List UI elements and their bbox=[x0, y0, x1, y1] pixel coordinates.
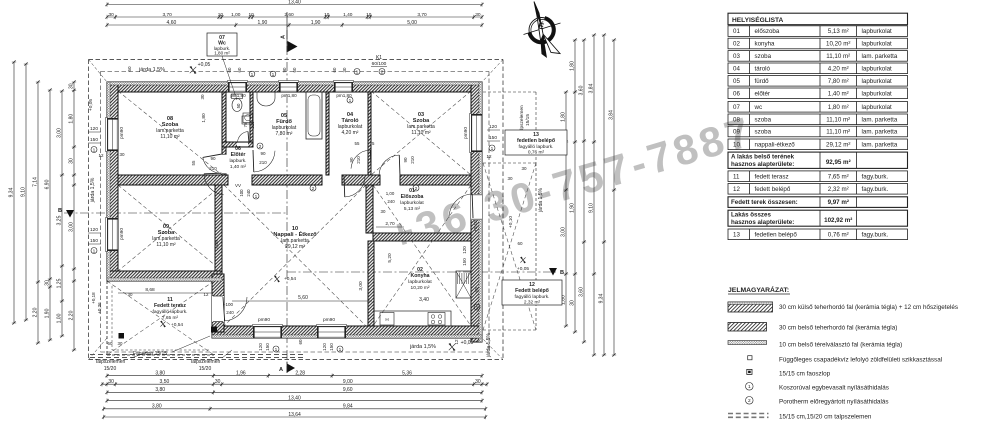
svg-text:fagy.burk.: fagy.burk. bbox=[862, 186, 889, 193]
svg-text:1: 1 bbox=[748, 384, 751, 390]
svg-text:hasznos alapterülete:: hasznos alapterülete: bbox=[731, 219, 794, 226]
svg-text:1: 1 bbox=[339, 347, 342, 353]
svg-text:90: 90 bbox=[349, 157, 354, 163]
svg-text:Függőleges csapadékvíz lefolyó: Függőleges csapadékvíz lefolyó zöldfelül… bbox=[779, 357, 942, 364]
svg-text:12: 12 bbox=[733, 186, 740, 193]
svg-text:1: 1 bbox=[272, 72, 275, 78]
svg-text:06: 06 bbox=[235, 146, 241, 152]
svg-text:2: 2 bbox=[259, 144, 262, 150]
svg-text:+0,54: +0,54 bbox=[284, 276, 296, 282]
svg-text:9,34: 9,34 bbox=[9, 187, 15, 197]
svg-text:3,60: 3,60 bbox=[579, 85, 585, 95]
svg-text:előszoba: előszoba bbox=[755, 28, 780, 35]
svg-text:9,10: 9,10 bbox=[21, 187, 27, 197]
svg-text:5,20: 5,20 bbox=[387, 253, 393, 263]
svg-text:30: 30 bbox=[342, 67, 347, 72]
svg-text:3,00: 3,00 bbox=[561, 227, 567, 237]
svg-text:30: 30 bbox=[381, 209, 386, 214]
svg-text:30: 30 bbox=[200, 94, 205, 100]
svg-text:120: 120 bbox=[462, 246, 467, 254]
svg-text:120: 120 bbox=[489, 124, 497, 130]
svg-text:előtér: előtér bbox=[755, 90, 770, 97]
svg-text:10,20 m²: 10,20 m² bbox=[411, 285, 430, 291]
svg-text:75: 75 bbox=[370, 141, 375, 146]
svg-text:210: 210 bbox=[209, 166, 217, 171]
svg-text:120: 120 bbox=[90, 227, 98, 233]
svg-text:A: A bbox=[279, 367, 283, 373]
svg-text:15/20: 15/20 bbox=[199, 366, 212, 372]
svg-text:Nappali - Étkező: Nappali - Étkező bbox=[273, 230, 317, 238]
svg-text:12: 12 bbox=[204, 292, 209, 297]
svg-text:+0,54: +0,54 bbox=[171, 322, 183, 328]
svg-text:lapburkolat: lapburkolat bbox=[408, 279, 432, 285]
svg-text:3,40: 3,40 bbox=[419, 297, 429, 303]
svg-text:210: 210 bbox=[356, 156, 361, 164]
svg-text:1,00: 1,00 bbox=[386, 191, 395, 196]
svg-text:+0,05: +0,05 bbox=[461, 340, 474, 346]
svg-text:60/100: 60/100 bbox=[372, 61, 387, 67]
svg-text:02: 02 bbox=[733, 41, 740, 48]
svg-text:03: 03 bbox=[733, 53, 740, 60]
svg-text:konyha: konyha bbox=[755, 41, 776, 48]
svg-text:3,00: 3,00 bbox=[69, 222, 75, 232]
svg-text:Előszoba: Előszoba bbox=[401, 194, 424, 200]
svg-text:lapburkolat: lapburkolat bbox=[862, 65, 893, 72]
svg-text:K1: K1 bbox=[376, 55, 382, 61]
svg-text:30: 30 bbox=[521, 166, 527, 171]
svg-text:fagyálló lapburk.: fagyálló lapburk. bbox=[519, 144, 554, 150]
svg-text:07: 07 bbox=[733, 104, 740, 111]
svg-text:Porotherm előregyártott nyílás: Porotherm előregyártott nyílásáthidalás bbox=[779, 399, 889, 406]
svg-text:9,84: 9,84 bbox=[343, 404, 353, 410]
svg-text:JELMAGYARÁZAT:: JELMAGYARÁZAT: bbox=[728, 285, 789, 294]
svg-text:11: 11 bbox=[733, 173, 740, 180]
svg-text:szoba: szoba bbox=[755, 53, 772, 60]
svg-text:fagyálló lapburk.: fagyálló lapburk. bbox=[515, 294, 550, 300]
svg-text:2: 2 bbox=[415, 186, 418, 192]
svg-text:10: 10 bbox=[292, 226, 298, 232]
svg-text:13: 13 bbox=[733, 231, 740, 238]
svg-text:30: 30 bbox=[119, 152, 125, 157]
svg-text:10: 10 bbox=[733, 141, 740, 148]
svg-text:01: 01 bbox=[733, 28, 740, 35]
svg-text:06: 06 bbox=[733, 90, 740, 97]
svg-text:3,84: 3,84 bbox=[589, 83, 595, 93]
svg-text:7,65 m²: 7,65 m² bbox=[828, 173, 849, 180]
svg-text:30: 30 bbox=[108, 379, 114, 385]
svg-text:3,70: 3,70 bbox=[163, 12, 173, 18]
svg-text:járda 1,5%: járda 1,5% bbox=[486, 332, 492, 357]
svg-text:11,10 m²: 11,10 m² bbox=[826, 53, 850, 60]
svg-text:30 cm belső teherhordó fal (ke: 30 cm belső teherhordó fal (kerámia tégl… bbox=[779, 325, 897, 332]
svg-text:30: 30 bbox=[215, 379, 221, 385]
svg-text:lapburkolat: lapburkolat bbox=[862, 104, 893, 111]
svg-text:4,20 m²: 4,20 m² bbox=[342, 130, 359, 136]
svg-text:11,10 m²: 11,10 m² bbox=[411, 130, 431, 136]
svg-text:13,40: 13,40 bbox=[288, 395, 301, 401]
svg-text:járda 1,5%: járda 1,5% bbox=[138, 67, 165, 73]
svg-text:Fedett belépő: Fedett belépő bbox=[515, 288, 549, 294]
svg-text:pm90: pm90 bbox=[119, 228, 125, 240]
svg-text:30 cm külső teherhordó fal (ke: 30 cm külső teherhordó fal (kerámia tégl… bbox=[779, 304, 958, 311]
svg-text:150: 150 bbox=[489, 135, 497, 141]
svg-text:30: 30 bbox=[507, 176, 513, 181]
svg-text:12: 12 bbox=[486, 154, 492, 159]
svg-text:fagy.burk.: fagy.burk. bbox=[862, 231, 889, 238]
svg-text:55: 55 bbox=[355, 141, 360, 146]
svg-text:B: B bbox=[560, 270, 564, 276]
svg-text:6,90: 6,90 bbox=[45, 179, 51, 189]
svg-text:szoba: szoba bbox=[755, 129, 772, 136]
svg-text:1: 1 bbox=[275, 347, 278, 353]
svg-text:9,60: 9,60 bbox=[343, 387, 353, 393]
svg-text:5,13 m²: 5,13 m² bbox=[404, 206, 421, 212]
svg-text:8,68: 8,68 bbox=[145, 287, 155, 293]
svg-text:Talpszelemen: Talpszelemen bbox=[95, 359, 126, 365]
svg-text:10,20 m²: 10,20 m² bbox=[826, 41, 850, 48]
svg-text:210: 210 bbox=[410, 156, 415, 164]
svg-text:60: 60 bbox=[298, 339, 303, 345]
svg-text:150: 150 bbox=[462, 258, 467, 266]
svg-text:15/15: 15/15 bbox=[525, 114, 531, 126]
svg-text:1,90: 1,90 bbox=[45, 308, 51, 318]
svg-text:3,80: 3,80 bbox=[152, 404, 162, 410]
svg-text:3,70: 3,70 bbox=[417, 12, 427, 18]
svg-text:60: 60 bbox=[292, 67, 297, 72]
svg-text:60: 60 bbox=[227, 67, 232, 72]
svg-text:Konyha: Konyha bbox=[410, 273, 429, 279]
svg-text:Faoszlop 15/15: Faoszlop 15/15 bbox=[133, 351, 167, 357]
svg-text:3,60: 3,60 bbox=[579, 287, 585, 297]
svg-text:10 cm belső térelválasztó fal: 10 cm belső térelválasztó fal (kerámia t… bbox=[779, 342, 902, 349]
svg-text:60: 60 bbox=[474, 287, 479, 293]
svg-text:240: 240 bbox=[387, 199, 395, 204]
svg-text:1: 1 bbox=[93, 248, 96, 254]
svg-text:1,90: 1,90 bbox=[311, 20, 321, 26]
svg-text:9,34: 9,34 bbox=[599, 293, 605, 303]
svg-text:150: 150 bbox=[265, 343, 270, 351]
svg-text:60: 60 bbox=[108, 341, 113, 346]
svg-text:240: 240 bbox=[226, 310, 234, 315]
svg-text:H: H bbox=[385, 317, 388, 322]
svg-text:5,36: 5,36 bbox=[402, 371, 412, 377]
svg-text:wc: wc bbox=[754, 104, 763, 111]
svg-text:13,40: 13,40 bbox=[288, 0, 301, 5]
svg-text:2,28: 2,28 bbox=[295, 371, 305, 377]
svg-text:1: 1 bbox=[93, 147, 96, 153]
svg-text:55: 55 bbox=[191, 160, 196, 166]
svg-text:fedetlen belépő: fedetlen belépő bbox=[755, 231, 798, 238]
svg-text:+0,05: +0,05 bbox=[198, 62, 211, 68]
svg-text:30: 30 bbox=[109, 12, 115, 18]
svg-text:fedetlen belépő: fedetlen belépő bbox=[517, 138, 555, 144]
svg-text:Koszorúval egybevasalt nyílásá: Koszorúval egybevasalt nyílásáthidalás bbox=[779, 385, 889, 392]
svg-text:pm90: pm90 bbox=[119, 127, 125, 139]
svg-text:60: 60 bbox=[237, 67, 242, 72]
svg-text:A lakás belső terének: A lakás belső terének bbox=[731, 154, 795, 161]
svg-text:1,80: 1,80 bbox=[561, 112, 567, 122]
svg-text:30: 30 bbox=[118, 341, 123, 346]
svg-text:150: 150 bbox=[329, 343, 334, 351]
svg-text:1,80 m²: 1,80 m² bbox=[214, 51, 230, 56]
svg-text:90: 90 bbox=[210, 156, 216, 161]
svg-text:+100: +100 bbox=[223, 302, 234, 307]
svg-text:+0,10: +0,10 bbox=[473, 220, 478, 232]
svg-text:1,25: 1,25 bbox=[57, 278, 63, 288]
svg-text:1,80: 1,80 bbox=[570, 61, 576, 71]
svg-text:60: 60 bbox=[127, 66, 132, 72]
svg-text:05: 05 bbox=[733, 78, 740, 85]
svg-text:lapburkolat: lapburkolat bbox=[862, 28, 893, 35]
svg-text:60: 60 bbox=[517, 241, 523, 246]
svg-text:2,32 m²: 2,32 m² bbox=[524, 300, 541, 306]
svg-text:Előtér: Előtér bbox=[231, 152, 246, 158]
svg-text:1,80: 1,80 bbox=[69, 114, 75, 124]
svg-text:1,80 m²: 1,80 m² bbox=[828, 104, 849, 111]
svg-text:1,90: 1,90 bbox=[258, 20, 268, 26]
svg-text:1,00: 1,00 bbox=[231, 12, 241, 18]
svg-text:09: 09 bbox=[733, 129, 740, 136]
svg-text:30: 30 bbox=[45, 280, 51, 286]
svg-text:+0,10: +0,10 bbox=[508, 216, 514, 228]
svg-text:2,20: 2,20 bbox=[69, 310, 75, 320]
svg-text:11,10 m²: 11,10 m² bbox=[160, 134, 180, 140]
svg-text:lapburk.: lapburk. bbox=[229, 158, 246, 164]
svg-text:4,60: 4,60 bbox=[167, 20, 177, 26]
svg-text:02: 02 bbox=[417, 267, 423, 273]
svg-text:B: B bbox=[58, 208, 62, 214]
svg-text:2: 2 bbox=[381, 69, 384, 75]
svg-text:150: 150 bbox=[90, 238, 98, 244]
svg-text:lam. parketta: lam. parketta bbox=[862, 129, 898, 136]
svg-text:3,50: 3,50 bbox=[160, 379, 170, 385]
svg-text:3,00: 3,00 bbox=[358, 281, 364, 291]
svg-text:100: 100 bbox=[239, 189, 244, 197]
svg-text:30: 30 bbox=[475, 379, 481, 385]
svg-text:pm90: pm90 bbox=[323, 317, 335, 323]
svg-text:járda 1,5%: járda 1,5% bbox=[90, 177, 96, 203]
svg-text:0,76 m²: 0,76 m² bbox=[528, 150, 545, 156]
svg-text:Fedett terasz: Fedett terasz bbox=[154, 303, 186, 309]
svg-text:30: 30 bbox=[475, 12, 481, 18]
svg-text:1,40 m²: 1,40 m² bbox=[230, 164, 247, 170]
svg-text:102,92 m²: 102,92 m² bbox=[824, 217, 852, 224]
svg-text:4,20 m²: 4,20 m² bbox=[828, 65, 849, 72]
svg-text:90: 90 bbox=[260, 151, 266, 156]
svg-text:+0,05: +0,05 bbox=[517, 266, 529, 272]
svg-text:1,90: 1,90 bbox=[570, 203, 576, 213]
svg-text:11,10 m²: 11,10 m² bbox=[156, 242, 176, 248]
svg-text:lam. parketta: lam. parketta bbox=[862, 53, 898, 60]
svg-text:210: 210 bbox=[259, 160, 267, 165]
svg-text:10: 10 bbox=[218, 12, 224, 18]
svg-text:1: 1 bbox=[491, 146, 494, 152]
svg-text:29,12 m²: 29,12 m² bbox=[826, 141, 850, 148]
svg-text:9,97 m²: 9,97 m² bbox=[828, 199, 849, 206]
svg-text:04: 04 bbox=[347, 112, 354, 118]
svg-text:hasznos alapterülete:: hasznos alapterülete: bbox=[731, 161, 794, 168]
svg-text:fedett terasz: fedett terasz bbox=[755, 173, 789, 180]
svg-text:lapburkolat: lapburkolat bbox=[862, 90, 893, 97]
svg-text:2: 2 bbox=[312, 186, 315, 192]
svg-text:Lakás összes: Lakás összes bbox=[731, 212, 771, 219]
svg-text:10: 10 bbox=[324, 12, 330, 18]
svg-text:1: 1 bbox=[251, 72, 254, 78]
svg-text:1,80: 1,80 bbox=[201, 113, 207, 123]
svg-text:1,40: 1,40 bbox=[343, 12, 353, 18]
svg-text:5,00: 5,00 bbox=[407, 20, 417, 26]
svg-text:05: 05 bbox=[281, 113, 287, 119]
svg-text:1: 1 bbox=[356, 69, 359, 75]
svg-text:2,70: 2,70 bbox=[385, 221, 395, 227]
svg-text:10: 10 bbox=[249, 12, 255, 18]
svg-text:2,08: 2,08 bbox=[214, 240, 220, 250]
svg-text:15/15 cm,15/20 cm talpszelemen: 15/15 cm,15/20 cm talpszelemen bbox=[779, 414, 872, 421]
svg-text:30: 30 bbox=[69, 158, 75, 164]
svg-text:3,80: 3,80 bbox=[155, 371, 165, 377]
svg-text:3,80: 3,80 bbox=[155, 387, 165, 393]
svg-text:60: 60 bbox=[332, 67, 337, 72]
svg-text:pm90: pm90 bbox=[463, 127, 469, 139]
svg-text:3,25: 3,25 bbox=[57, 215, 63, 225]
svg-text:04: 04 bbox=[733, 65, 740, 72]
svg-text:7,14: 7,14 bbox=[33, 177, 39, 187]
svg-text:Fedett terek összesen:: Fedett terek összesen: bbox=[731, 199, 798, 206]
svg-text:járda 1,5%: járda 1,5% bbox=[538, 187, 544, 212]
svg-text:pm1,80: pm1,80 bbox=[230, 93, 246, 98]
svg-text:15/20: 15/20 bbox=[104, 366, 117, 372]
svg-text:lapburkolat: lapburkolat bbox=[862, 78, 893, 85]
svg-text:29,12 m²: 29,12 m² bbox=[285, 244, 305, 250]
svg-text:nappali-étkező: nappali-étkező bbox=[755, 141, 796, 148]
svg-text:lapburkolat: lapburkolat bbox=[400, 200, 424, 206]
svg-text:pm1,80: pm1,80 bbox=[281, 93, 297, 98]
svg-text:7,80 m²: 7,80 m² bbox=[276, 131, 293, 137]
svg-text:11,10 m²: 11,10 m² bbox=[826, 129, 850, 136]
svg-text:08: 08 bbox=[733, 116, 740, 123]
svg-text:12: 12 bbox=[454, 339, 459, 345]
svg-text:lam. parketta: lam. parketta bbox=[862, 141, 898, 148]
svg-text:13,64: 13,64 bbox=[288, 412, 301, 418]
svg-text:7,80 m²: 7,80 m² bbox=[828, 78, 849, 85]
svg-text:09: 09 bbox=[163, 224, 169, 230]
svg-text:5,13 m²: 5,13 m² bbox=[828, 28, 849, 35]
svg-text:HELYISÉGLISTA: HELYISÉGLISTA bbox=[732, 15, 784, 24]
svg-text:tároló: tároló bbox=[755, 65, 771, 72]
svg-text:2,60: 2,60 bbox=[284, 12, 294, 18]
svg-text:3,84: 3,84 bbox=[609, 110, 615, 120]
svg-text:50: 50 bbox=[236, 103, 241, 108]
svg-text:11,10 m²: 11,10 m² bbox=[826, 116, 850, 123]
svg-text:12: 12 bbox=[98, 153, 104, 158]
svg-text:3,00: 3,00 bbox=[57, 128, 63, 138]
svg-text:2,32 m²: 2,32 m² bbox=[828, 186, 849, 193]
svg-text:0,76 m²: 0,76 m² bbox=[828, 231, 849, 238]
svg-text:fagyálló lapburk.: fagyálló lapburk. bbox=[153, 309, 188, 315]
svg-text:lapburkolat: lapburkolat bbox=[862, 41, 893, 48]
svg-text:10: 10 bbox=[366, 12, 372, 18]
svg-text:1,96: 1,96 bbox=[236, 371, 246, 377]
svg-text:9,00: 9,00 bbox=[343, 379, 353, 385]
svg-text:VV: VV bbox=[235, 183, 241, 188]
svg-text:5,60: 5,60 bbox=[298, 295, 308, 301]
svg-text:7,65 m²: 7,65 m² bbox=[162, 315, 179, 321]
svg-text:92,95 m²: 92,95 m² bbox=[826, 159, 851, 166]
svg-text:A: A bbox=[281, 35, 287, 39]
svg-text:30: 30 bbox=[570, 300, 576, 306]
svg-text:fagy.burk.: fagy.burk. bbox=[862, 173, 889, 180]
svg-text:1: 1 bbox=[349, 98, 352, 104]
svg-text:03: 03 bbox=[418, 112, 424, 118]
svg-text:1: 1 bbox=[255, 194, 258, 200]
svg-text:1,40 m²: 1,40 m² bbox=[828, 90, 849, 97]
svg-text:08: 08 bbox=[167, 116, 173, 122]
svg-text:15/15 cm faoszlop: 15/15 cm faoszlop bbox=[779, 371, 831, 378]
svg-text:75: 75 bbox=[243, 122, 248, 127]
svg-text:120: 120 bbox=[322, 343, 327, 351]
svg-text:szoba: szoba bbox=[755, 116, 772, 123]
svg-text:9,10: 9,10 bbox=[589, 203, 595, 213]
svg-text:120: 120 bbox=[258, 343, 263, 351]
svg-text:lam. parketta: lam. parketta bbox=[862, 116, 898, 123]
svg-text:120: 120 bbox=[90, 126, 98, 132]
svg-text:2,20: 2,20 bbox=[33, 307, 39, 317]
svg-text:150: 150 bbox=[90, 137, 98, 143]
svg-text:fedett belépő: fedett belépő bbox=[755, 186, 791, 193]
svg-text:30: 30 bbox=[128, 292, 133, 297]
svg-text:30: 30 bbox=[69, 83, 75, 89]
svg-text:1: 1 bbox=[476, 305, 479, 311]
svg-text:járda 1,5%: járda 1,5% bbox=[409, 344, 436, 350]
svg-text:2: 2 bbox=[748, 398, 751, 404]
svg-text:Talpszelemen: Talpszelemen bbox=[190, 359, 221, 365]
svg-text:pm90: pm90 bbox=[258, 317, 270, 323]
svg-text:90: 90 bbox=[403, 157, 408, 163]
svg-text:1,00: 1,00 bbox=[57, 313, 63, 323]
svg-text:90: 90 bbox=[282, 67, 287, 72]
svg-text:fürdő: fürdő bbox=[755, 78, 770, 85]
svg-text:+0,05: +0,05 bbox=[88, 99, 94, 111]
svg-text:+0,36: +0,36 bbox=[97, 302, 102, 314]
svg-text:210: 210 bbox=[250, 121, 255, 129]
svg-text:+0,18: +0,18 bbox=[91, 292, 96, 304]
svg-text:240: 240 bbox=[246, 189, 251, 197]
